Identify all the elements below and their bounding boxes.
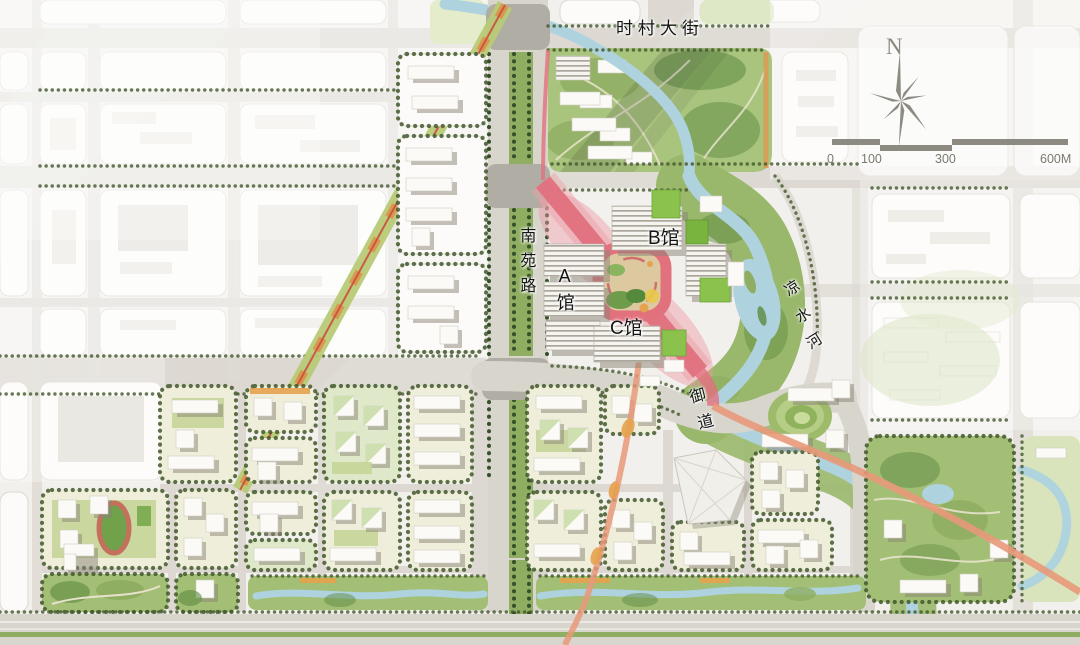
scale-tick-600: 600M: [1040, 152, 1071, 166]
compass-north-label: N: [886, 34, 903, 60]
green-roof: [652, 190, 680, 218]
south-highway: [0, 612, 1080, 645]
west-avenue-blocks: [398, 54, 486, 352]
site-plan-canvas: [0, 0, 1080, 645]
green-roof: [662, 330, 686, 356]
label-shicun-street: 时村大街: [616, 19, 704, 39]
green-roof: [700, 278, 730, 302]
scale-tick-300: 300: [935, 152, 956, 166]
label-hall-a: A馆: [554, 266, 575, 318]
label-nanyuan-road: 南苑路: [516, 227, 534, 302]
scale-tick-0: 0: [827, 152, 834, 166]
park-block: [42, 574, 168, 612]
master-plan-map: 时村大街 南苑路 A馆 B馆 C馆 御 道 凉 水 河 N 0 100 300 …: [0, 0, 1080, 645]
scale-tick-100: 100: [861, 152, 882, 166]
school-campus-block: [42, 490, 168, 574]
label-hall-b: B馆: [648, 228, 680, 250]
central-park-north: [546, 48, 772, 172]
green-roof: [686, 220, 708, 244]
south-canal-band: [248, 576, 866, 610]
label-hall-c: C馆: [610, 318, 643, 340]
river-park-southeast: [866, 436, 1014, 602]
